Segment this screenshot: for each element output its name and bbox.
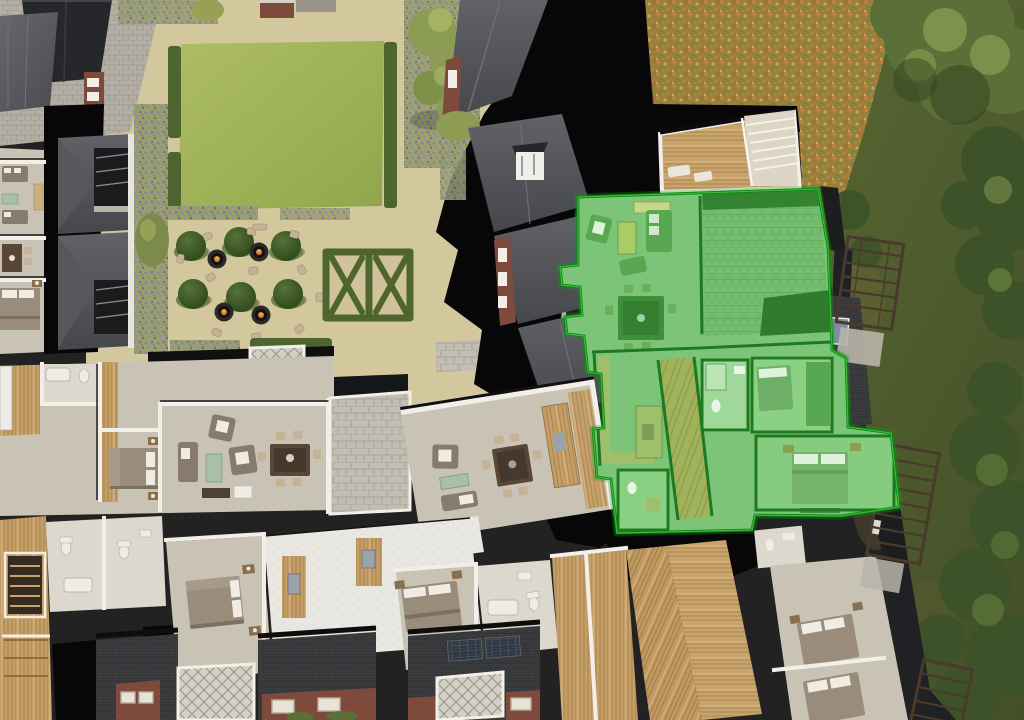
solar-panel	[485, 636, 520, 658]
shrub	[192, 0, 224, 21]
hip-roof	[0, 12, 58, 112]
coffee-table	[2, 194, 18, 204]
bench	[34, 184, 43, 210]
street-facades	[96, 622, 540, 720]
lawn	[179, 41, 384, 210]
roof-facade	[258, 628, 376, 720]
bathroom	[42, 364, 100, 404]
bathroom	[754, 526, 806, 569]
top-left-courtyard	[0, 0, 169, 354]
bedroom	[166, 536, 272, 682]
parterre-hedge-xx	[322, 248, 414, 322]
hedge	[168, 46, 181, 138]
terrace-pavers	[330, 392, 410, 514]
solar-panel	[447, 639, 482, 661]
coffee-table	[206, 454, 222, 482]
left-apartment-interior	[0, 148, 44, 354]
siteplan-render	[0, 0, 1024, 720]
unit-roof-terrace	[700, 189, 830, 336]
stair-gallery	[0, 516, 52, 720]
bathrooms	[46, 516, 166, 612]
porch-canopy	[437, 672, 503, 720]
porch-canopy	[178, 664, 254, 720]
hedge	[168, 152, 181, 208]
gabled-roofs-with-balconies	[58, 134, 135, 350]
roof-facade	[96, 630, 178, 720]
paver-path	[436, 340, 480, 372]
roof-facade-solar	[408, 622, 540, 720]
hedge	[384, 42, 397, 208]
